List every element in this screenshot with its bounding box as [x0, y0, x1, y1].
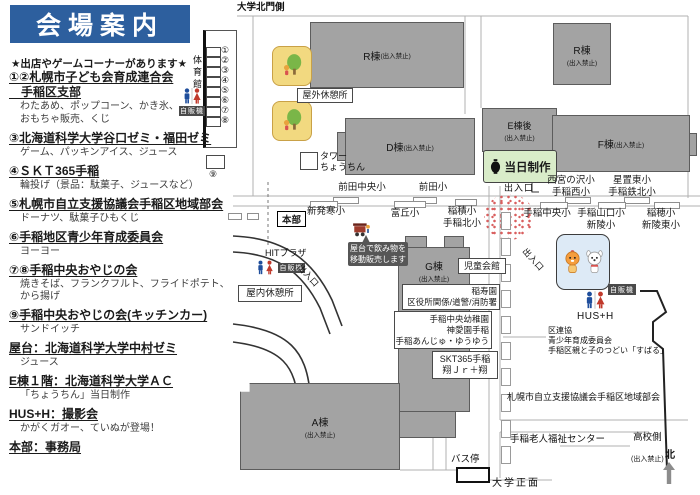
outdoor-rest-area-2 [272, 101, 312, 141]
north-label: 北 [665, 450, 675, 461]
road-rung [501, 238, 511, 256]
tower-label: タワー ちょうちん [320, 151, 365, 173]
building-r-east: R棟(出入禁止) [553, 23, 611, 85]
exhibitor-entry-desc: わたあめ、ポップコーン、かき氷、 おもちゃ販売、くじ [20, 101, 231, 126]
exhibitor-entry-head: HUS+H：撮影会 [9, 407, 231, 422]
north-gate-label: 大学北門側 [237, 2, 285, 13]
building-r-west: R棟(出入禁止) [310, 22, 464, 88]
road-marker [247, 213, 259, 220]
school-stop-label: 稲積小 手稲北小 [436, 206, 488, 230]
exhibitor-entry-desc: かがくガオー、ていぬが登場！ [20, 423, 231, 436]
exhibitor-entry-desc: 焼きそば、フランクフルト、フライドポテト、 から揚げ [20, 279, 231, 304]
exhibitor-entry-desc: 輪投げ（景品：駄菓子、ジュースなど） [20, 180, 231, 193]
university-front-label: 大学正面 (稲山通り側) [492, 467, 540, 495]
facility-tojuen-group: 稲寿園 区役所関係/道警/消防署 [402, 284, 500, 310]
school-stop-label: 富丘小 [380, 208, 430, 220]
exhibitor-entry: E棟１階：北海道科学大学ＡＣ「ちょうちん」当日制作 [9, 374, 231, 403]
road-rung [501, 290, 511, 308]
exhibitor-entry: ⑨手稲中央おやじの会(キッチンカー)サンドイッチ [9, 308, 231, 337]
mascot-teinu-icon [585, 249, 604, 275]
road-rung [501, 342, 511, 360]
exhibitor-entry-head: ④ＳＫＴ365手稲 [9, 164, 231, 179]
bus-shelter-box [456, 467, 490, 483]
road-rung [501, 212, 511, 230]
facility-skt365: SKT365手稲 翔Ｊｒ＋翔 [432, 351, 498, 379]
exhibitor-list: ①②札幌市子ども会育成連合会 手稲区支部わたあめ、ポップコーン、かき氷、 おもち… [9, 70, 231, 460]
north-arrow-icon [663, 462, 675, 489]
legend-sidebar: 会場案内 ★出店やゲームコーナーがあります★ ①②札幌市子ども会育成連合会 手稲… [0, 0, 232, 495]
exhibitor-entry-desc: ゲーム、パッキンアイス、ジュース [20, 147, 231, 160]
road-marker [394, 201, 426, 208]
school-stop-label: 手稲中央小 [518, 208, 576, 220]
road-marker [455, 199, 477, 206]
exhibitor-entry-desc: 「ちょうちん」当日制作 [20, 390, 231, 403]
tree-icon [279, 53, 305, 79]
exhibitor-entry-head: 屋台：北海道科学大学中村ゼミ [9, 341, 231, 356]
school-stop-label: 新発寒小 [298, 206, 354, 218]
exhibitor-entry-head: ①②札幌市子ども会育成連合会 手稲区支部 [9, 70, 231, 100]
bus-stop-label: バス停 [451, 454, 480, 465]
facility-kinder-group: 手稲中央幼稚園 神愛園手稲 手稲あんじゅ・ゆうゆう [394, 311, 492, 349]
lantern-icon [490, 159, 501, 174]
school-stop-label: 前田中央小 [330, 182, 394, 194]
exhibitor-entry-desc: ジュース [20, 357, 231, 370]
mobile-sales-bubble: 屋台で飲み物を 移動販売します [348, 242, 408, 266]
exhibitor-entry-head: ⑦⑧手稲中央おやじの会 [9, 263, 231, 278]
facility-rojin-center: 手稲老人福祉センター [510, 434, 605, 445]
exhibitor-entry-head: ⑨手稲中央おやじの会(キッチンカー) [9, 308, 231, 323]
exhibitor-entry-head: E棟１階：北海道科学大学ＡＣ [9, 374, 231, 389]
road-rung [501, 316, 511, 334]
tower-box [300, 152, 318, 170]
road-rung [501, 368, 511, 386]
vending-machine-label-hush: 自販機 [608, 284, 636, 295]
exhibitor-entry-head: ⑥手稲地区青少年育成委員会 [9, 230, 231, 245]
exhibitor-entry: ④ＳＫＴ365手稲輪投げ（景品：駄菓子、ジュースなど） [9, 164, 231, 193]
exhibitor-entry: 屋台：北海道科学大学中村ゼミジュース [9, 341, 231, 370]
exhibitor-entry: 本部：事務局 [9, 440, 231, 455]
school-stop-label: 西宮の沢小 手稲西小 [540, 175, 602, 199]
highschool-side-label: 高校側 (出入禁止) [631, 421, 664, 476]
school-stop-label: 手稲山口小 新陵小 [572, 208, 630, 232]
exhibitor-entry-head: ③北海道科学大学谷口ゼミ・福田ゼミ [9, 131, 231, 146]
stalls-note: ★出店やゲームコーナーがあります★ [11, 56, 187, 71]
exhibitor-entry: ①②札幌市子ども会育成連合会 手稲区支部わたあめ、ポップコーン、かき氷、 おもち… [9, 70, 231, 126]
hit-plaza-label: HITプラザ [265, 248, 307, 259]
tree-icon [279, 108, 305, 134]
exhibitor-entry-desc: ドーナツ、駄菓子ひもくじ [20, 213, 231, 226]
restroom-icon [256, 260, 274, 280]
outdoor-rest-area-1 [272, 46, 312, 86]
facility-kurenkyo-group: 区連協 青少年育成委員会 手稲区親と子のつどい「すばる」 [548, 326, 668, 356]
venue-guide-poster: 体育館 自販機 ①②③④⑤⑥⑦⑧ ⑨ R棟(出入禁止) R棟(出入禁止) D棟(… [0, 0, 700, 495]
building-e-rear: E棟後(出入禁止) [482, 108, 557, 152]
exhibitor-entry-desc: ヨーヨー [20, 246, 231, 259]
facility-shien-council: 札幌市自立支援協議会手稲区地域部会 [507, 392, 660, 403]
facility-jidokaikan: 児童会館 [458, 258, 506, 274]
exhibitor-entry: ⑤札幌市自立支援協議会手稲区地域部会ドーナツ、駄菓子ひもくじ [9, 197, 231, 226]
exhibitor-entry: ⑥手稲地区青少年育成委員会ヨーヨー [9, 230, 231, 259]
onsite-making-label: 当日制作 [505, 159, 551, 175]
exhibitor-entry: HUS+H：撮影会かがくガオー、ていぬが登場！ [9, 407, 231, 436]
exhibitor-entry: ⑦⑧手稲中央おやじの会焼きそば、フランクフルト、フライドポテト、 から揚げ [9, 263, 231, 304]
exhibitor-entry-head: 本部：事務局 [9, 440, 231, 455]
indoor-rest-label: 屋内休憩所 [238, 285, 302, 302]
page-title: 会場案内 [10, 5, 190, 43]
entrance-label-center: 出入口 [504, 183, 534, 194]
mascot-kagaku-gao-icon [563, 249, 582, 275]
school-stop-label: 星置東小 手稲鉄北小 [602, 175, 662, 199]
outdoor-rest-label: 屋外休憩所 [297, 88, 353, 103]
building-g-lower [398, 410, 456, 438]
road-rung [501, 446, 511, 464]
exhibitor-entry-head: ⑤札幌市自立支援協議会手稲区地域部会 [9, 197, 231, 212]
school-stop-label: 前田小 [408, 182, 458, 194]
exhibitor-entry-desc: サンドイッチ [20, 324, 231, 337]
hush-photo-box [556, 234, 610, 290]
school-stop-label: 稲穂小 新陵東小 [636, 208, 686, 232]
building-a: A棟(出入禁止) [240, 383, 400, 470]
hush-label: HUS+H [577, 311, 614, 322]
building-f: F棟(出入禁止) [552, 115, 690, 172]
entrance-label-east: 出入口 [520, 246, 546, 273]
exhibitor-entry: ③北海道科学大学谷口ゼミ・福田ゼミゲーム、パッキンアイス、ジュース [9, 131, 231, 160]
